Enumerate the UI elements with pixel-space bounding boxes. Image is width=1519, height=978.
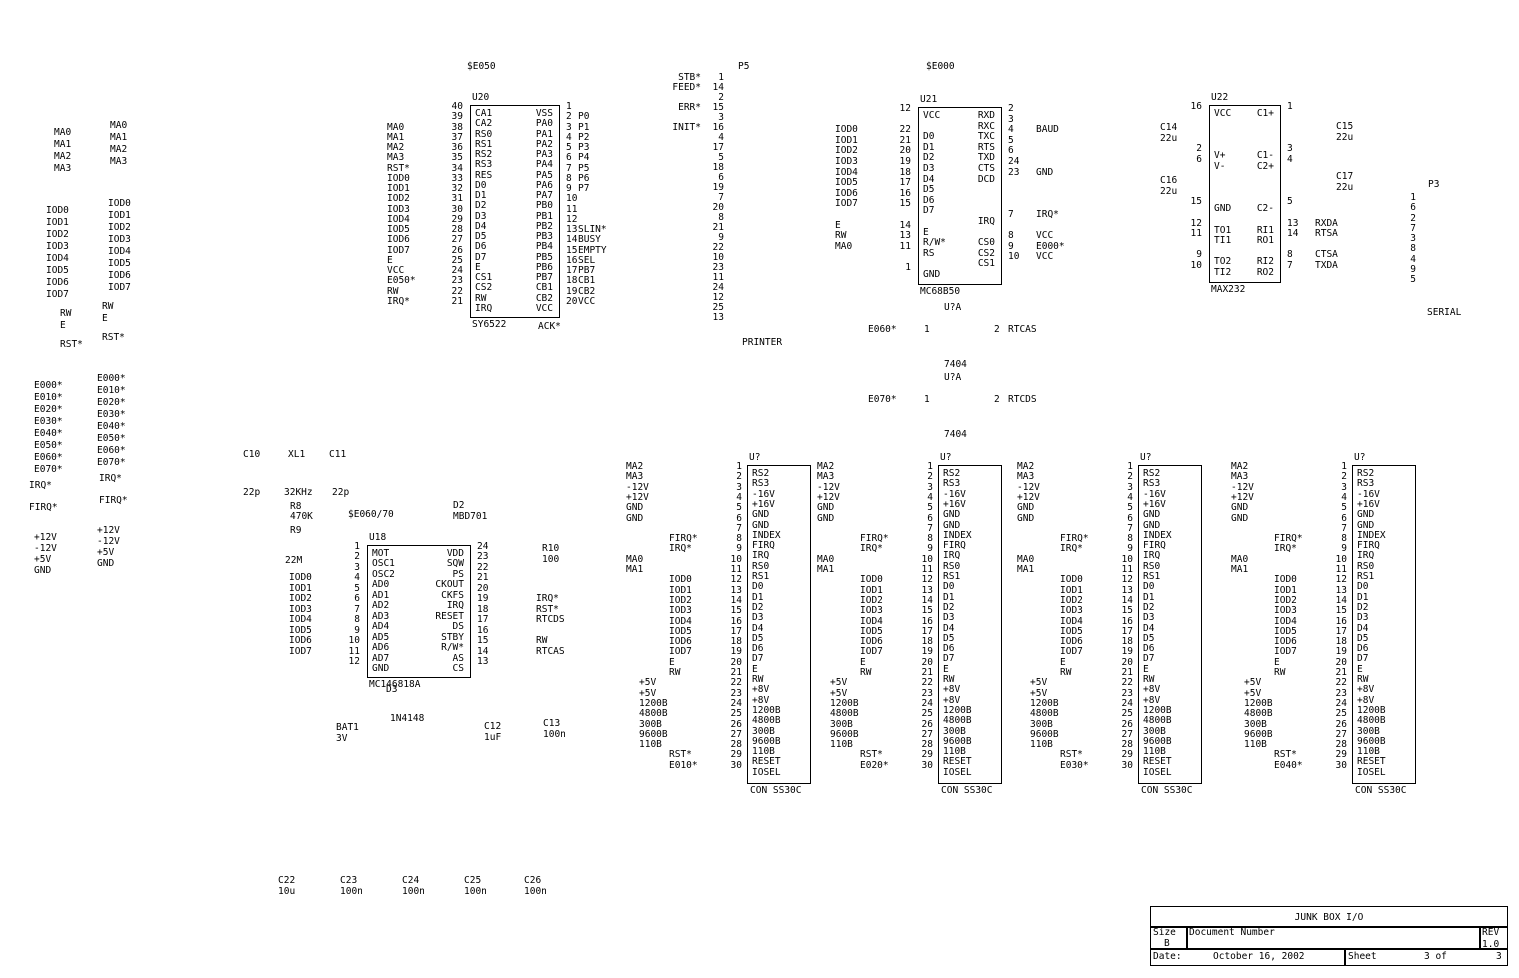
pin-net: RW	[1060, 668, 1071, 678]
pin-number: 3	[566, 123, 572, 133]
text-label: ACK*	[538, 322, 561, 332]
pin-net: 300B	[1030, 720, 1053, 730]
pin-name: RESET	[943, 757, 972, 767]
gate-refdes: U?A	[944, 373, 961, 383]
text-label: C26	[524, 876, 541, 886]
connector-partnumber: CON SS30C	[1141, 786, 1192, 796]
terminal-net-label: IOD2	[108, 223, 131, 233]
pin-net: 110B	[639, 740, 662, 750]
terminal-label: IOD2	[46, 230, 69, 240]
pin-number: 10	[566, 194, 577, 204]
terminal-net-label: MA3	[110, 157, 127, 167]
pin-number: 23	[1008, 168, 1019, 178]
pin-number: 3	[1008, 115, 1014, 125]
terminal-label: RST*	[60, 340, 83, 350]
pin-net: IOD2	[289, 594, 312, 604]
pin-name: IRQ	[1143, 551, 1160, 561]
pin-net: E020*	[860, 761, 889, 771]
pin-number: 30	[1122, 761, 1133, 771]
pin-number: 2	[1196, 144, 1202, 154]
text-label: R10	[542, 544, 559, 554]
pin-net: IOD0	[1274, 575, 1297, 585]
pin-name: AD2	[372, 601, 389, 611]
terminal-label: E040*	[34, 429, 63, 439]
gate-output-net: RTCAS	[1008, 325, 1037, 335]
pin-net: IOD7	[387, 246, 410, 256]
sheet-title: JUNK BOX I/O	[1295, 912, 1364, 923]
text-label: D2	[453, 501, 464, 511]
connector-refdes: U?	[940, 453, 951, 463]
text-label: 100	[542, 555, 559, 565]
pin-net: IRQ*	[669, 544, 692, 554]
terminal-label: E060*	[34, 453, 63, 463]
terminal-label: E000*	[34, 381, 63, 391]
pin-number: 19	[900, 157, 911, 167]
pin-name: D7	[923, 206, 934, 216]
terminal-net-label: GND	[97, 559, 114, 569]
gate-output-net: RTCDS	[1008, 395, 1037, 405]
pin-net: +5V	[1030, 678, 1047, 688]
pin-net: IRQ*	[1036, 210, 1059, 220]
terminal-net-label: FIRQ*	[99, 496, 128, 506]
pin-name: D3	[1143, 613, 1154, 623]
pin-net: GND	[817, 514, 834, 524]
pin-name: RES	[475, 171, 492, 181]
pin-number: 5	[1008, 136, 1014, 146]
pin-net: MA1	[1017, 565, 1034, 575]
pin-net: E040*	[1274, 761, 1303, 771]
pin-name: CS	[453, 664, 464, 674]
pin-net: BUSY	[578, 235, 601, 245]
text-label: C12	[484, 722, 501, 732]
pin-net: IRQ*	[1274, 544, 1297, 554]
pin-net: RST*	[860, 750, 883, 760]
pin-number: 5	[1410, 275, 1416, 285]
pin-net: MA3	[1231, 472, 1248, 482]
text-label: $E060/70	[348, 510, 394, 520]
pin-net: IOD3	[669, 606, 692, 616]
pin-name: AD0	[372, 580, 389, 590]
pin-number: 2	[994, 395, 1000, 405]
pin-name: D3	[752, 613, 763, 623]
pin-number: 9	[1008, 242, 1014, 252]
pin-number: 1	[924, 395, 930, 405]
pin-name: RXD	[978, 111, 995, 121]
text-label: C25	[464, 876, 481, 886]
text-label: C24	[402, 876, 419, 886]
pin-number: 3	[1287, 144, 1293, 154]
pin-net: EMPTY	[578, 246, 607, 256]
pin-net: RW	[1274, 668, 1285, 678]
pin-number: 8	[1008, 231, 1014, 241]
text-label: 100n	[543, 730, 566, 740]
terminal-label: E050*	[34, 441, 63, 451]
pin-net: IOD1	[835, 136, 858, 146]
pin-net: CTSA	[1315, 250, 1338, 260]
terminal-net-label: E030*	[97, 410, 126, 420]
pin-net: 300B	[830, 720, 853, 730]
gate-partnumber: 7404	[944, 430, 967, 440]
pin-net: MA3	[817, 472, 834, 482]
pin-name: D0	[923, 132, 934, 142]
pin-net: RW	[860, 668, 871, 678]
terminal-net-label: IOD5	[108, 259, 131, 269]
pin-net: GND	[1036, 168, 1053, 178]
terminal-label: IOD6	[46, 278, 69, 288]
pin-name: D7	[752, 654, 763, 664]
pin-name: RS0	[475, 130, 492, 140]
pin-name: TO1	[1214, 226, 1231, 236]
pin-net: IOD6	[289, 636, 312, 646]
terminal-label: -12V	[34, 544, 57, 554]
pin-number: 4	[1008, 125, 1014, 135]
pin-name: D0	[752, 582, 763, 592]
pin-net: VCC	[1036, 252, 1053, 262]
text-label: 22u	[1336, 133, 1353, 143]
terminal-net-label: IOD6	[108, 271, 131, 281]
pin-name: C1-	[1257, 151, 1274, 161]
pin-name: IOSEL	[752, 768, 781, 778]
pin-name: TXD	[978, 153, 995, 163]
pin-net: +5V	[830, 678, 847, 688]
pin-net: GND	[1017, 503, 1034, 513]
pin-number: 15	[900, 199, 911, 209]
text-label: 1N4148	[390, 714, 424, 724]
pin-number: 13	[900, 231, 911, 241]
pin-net: ERR*	[678, 103, 701, 113]
chip-refdes: U18	[369, 533, 386, 543]
pin-net: RST*	[387, 164, 410, 174]
text-label: 32KHz	[284, 488, 313, 498]
pin-net: IOD4	[1274, 617, 1297, 627]
pin-net: +5V	[1244, 678, 1261, 688]
terminal-net-label: E050*	[97, 434, 126, 444]
pin-net: MA3	[387, 153, 404, 163]
pin-number: 11	[1191, 229, 1202, 239]
terminal-net-label: IOD0	[108, 199, 131, 209]
pin-net: IOD7	[835, 199, 858, 209]
pin-name: 300B	[1143, 727, 1166, 737]
terminal-net-label: IOD7	[108, 283, 131, 293]
terminal-net-label: -12V	[97, 537, 120, 547]
pin-net: 300B	[1244, 720, 1267, 730]
pin-net: 110B	[1244, 740, 1267, 750]
terminal-net-label: IRQ*	[99, 474, 122, 484]
pin-net: IOD7	[1274, 647, 1297, 657]
pin-number: 12	[1191, 219, 1202, 229]
pin-name: VCC	[536, 304, 553, 314]
pin-number: 21	[452, 297, 463, 307]
terminal-label: IOD3	[46, 242, 69, 252]
pin-net: 4800B	[1030, 709, 1059, 719]
pin-name: GND	[1357, 521, 1374, 531]
pin-net: VCC	[578, 297, 595, 307]
pin-number: 24	[1008, 157, 1019, 167]
text-label: MBD701	[453, 512, 487, 522]
pin-name: RXC	[978, 122, 995, 132]
chip-refdes: U21	[920, 95, 937, 105]
pin-number: 15	[566, 246, 577, 256]
terminal-label: MA3	[54, 164, 71, 174]
pin-net: IOD6	[835, 189, 858, 199]
pin-number: 8	[1287, 250, 1293, 260]
pin-number: 18	[566, 276, 577, 286]
pin-net: IOD4	[289, 615, 312, 625]
pin-net: 110B	[1030, 740, 1053, 750]
pin-name: GND	[752, 521, 769, 531]
pin-net: MA1	[817, 565, 834, 575]
pin-name: V+	[1214, 151, 1225, 161]
terminal-label: IOD4	[46, 254, 69, 264]
gate-partnumber: 7404	[944, 360, 967, 370]
pin-net: E030*	[1060, 761, 1089, 771]
pin-name: GND	[372, 664, 389, 674]
pin-net: MA0	[387, 123, 404, 133]
pin-net: 4800B	[830, 709, 859, 719]
pin-number: 13	[1287, 219, 1298, 229]
pin-number: 30	[1336, 761, 1347, 771]
terminal-net-label: E010*	[97, 386, 126, 396]
text-label: BAT1	[336, 723, 359, 733]
pin-name: C1+	[1257, 109, 1274, 119]
pin-name: CS0	[978, 238, 995, 248]
pin-name: RESET	[1143, 757, 1172, 767]
pin-number: 17	[900, 178, 911, 188]
pin-name: D7	[1357, 654, 1368, 664]
pin-name: 300B	[943, 727, 966, 737]
pin-name: RO1	[1257, 236, 1274, 246]
pin-name: VCC	[1214, 109, 1231, 119]
pin-name: VCC	[923, 111, 940, 121]
text-label: $E050	[467, 62, 496, 72]
pin-net: IRQ*	[860, 544, 883, 554]
text-label: $E000	[926, 62, 955, 72]
pin-number: 2	[566, 112, 572, 122]
pin-number: 7	[1008, 210, 1014, 220]
pin-name: RTS	[978, 143, 995, 153]
pin-net: IOD4	[860, 617, 883, 627]
terminal-net-label: MA0	[110, 121, 127, 131]
text-label: D3	[386, 685, 397, 695]
pin-net: E000*	[1036, 242, 1065, 252]
terminal-net-label: MA2	[110, 145, 127, 155]
pin-number: 20	[900, 146, 911, 156]
sheet-total: 3	[1496, 951, 1502, 962]
pin-name: D3	[475, 212, 486, 222]
pin-net: MA3	[626, 472, 643, 482]
pin-number: 12	[349, 657, 360, 667]
pin-net: VCC	[1036, 231, 1053, 241]
pin-net: 300B	[639, 720, 662, 730]
pin-name: D0	[1143, 582, 1154, 592]
pin-name: D7	[475, 253, 486, 263]
terminal-label: IOD1	[46, 218, 69, 228]
pin-number: 13	[477, 657, 488, 667]
chip-refdes: U20	[472, 93, 489, 103]
pin-name: +8V	[752, 685, 769, 695]
pin-net: RW	[835, 231, 846, 241]
pin-net: 4800B	[639, 709, 668, 719]
text-label: R9	[290, 526, 301, 536]
connector-refdes: P3	[1428, 180, 1439, 190]
pin-name: D7	[943, 654, 954, 664]
terminal-net-label: RST*	[102, 333, 125, 343]
doc-number-label: Document Number	[1189, 927, 1275, 938]
text-label: 22u	[1160, 187, 1177, 197]
pin-net: GND	[1231, 514, 1248, 524]
pin-name: TO2	[1214, 257, 1231, 267]
pin-name: D6	[475, 242, 486, 252]
terminal-label: MA2	[54, 152, 71, 162]
pin-net: GND	[817, 503, 834, 513]
terminal-label: IOD7	[46, 290, 69, 300]
text-label: XL1	[288, 450, 305, 460]
pin-number: 19	[566, 287, 577, 297]
pin-name: D0	[943, 582, 954, 592]
connector-label: PRINTER	[742, 338, 782, 348]
pin-name: GND	[943, 521, 960, 531]
pin-number: 20	[566, 297, 577, 307]
pin-name: OSC1	[372, 559, 395, 569]
pin-net: IOD4	[1060, 617, 1083, 627]
text-label: 22M	[285, 556, 302, 566]
text-label: 22u	[1336, 183, 1353, 193]
pin-name: C2-	[1257, 204, 1274, 214]
pin-name: D1	[923, 143, 934, 153]
pin-net: IOD7	[289, 647, 312, 657]
pin-name: 4800B	[752, 716, 781, 726]
text-label: C13	[543, 719, 560, 729]
text-label: 100n	[524, 887, 547, 897]
gate-input-net: E070*	[868, 395, 897, 405]
text-label: C15	[1336, 122, 1353, 132]
pin-name: +8V	[1143, 685, 1160, 695]
text-label: C11	[329, 450, 346, 460]
pin-name: D3	[923, 164, 934, 174]
text-label: 22p	[243, 488, 260, 498]
pin-number: 9	[1196, 250, 1202, 260]
pin-net: RW	[669, 668, 680, 678]
pin-number: 21	[900, 136, 911, 146]
pin-name: E	[923, 228, 929, 238]
pin-name: RS3	[943, 479, 960, 489]
pin-net: IOD6	[387, 235, 410, 245]
pin-net: GND	[1231, 503, 1248, 513]
connector-partnumber: CON SS30C	[750, 786, 801, 796]
date-value: October 16, 2002	[1213, 951, 1305, 962]
pin-number: 6	[1196, 155, 1202, 165]
pin-net: IOD3	[835, 157, 858, 167]
pin-name: IOSEL	[943, 768, 972, 778]
pin-number: 7	[566, 164, 572, 174]
pin-net: P5	[578, 164, 589, 174]
pin-name: TI1	[1214, 236, 1231, 246]
text-label: C14	[1160, 123, 1177, 133]
text-label: C17	[1336, 172, 1353, 182]
pin-number: 11	[566, 205, 577, 215]
text-label: 100n	[402, 887, 425, 897]
pin-number: 4	[1287, 155, 1293, 165]
connector-partnumber: CON SS30C	[941, 786, 992, 796]
pin-name: D4	[752, 624, 763, 634]
pin-net: RW	[536, 636, 547, 646]
connector-refdes: P5	[738, 62, 749, 72]
pin-name: D3	[943, 613, 954, 623]
pin-name: IRQ	[475, 304, 492, 314]
sheet-label: Sheet	[1348, 951, 1377, 962]
pin-number: 1	[924, 325, 930, 335]
terminal-net-label: IOD1	[108, 211, 131, 221]
chip-partnumber: MC68B50	[920, 287, 960, 297]
pin-number: 14	[900, 221, 911, 231]
pin-net: RST*	[1274, 750, 1297, 760]
pin-net: IOD0	[669, 575, 692, 585]
pin-net: RXDA	[1315, 219, 1338, 229]
terminal-label: MA1	[54, 140, 71, 150]
pin-net: IRQ*	[387, 297, 410, 307]
terminal-label: IOD0	[46, 206, 69, 216]
gate-input-net: E060*	[868, 325, 897, 335]
text-label: 100n	[464, 887, 487, 897]
pin-name: 300B	[1357, 727, 1380, 737]
terminal-net-label: E070*	[97, 458, 126, 468]
connector-partnumber: CON SS30C	[1355, 786, 1406, 796]
pin-number: 6	[1008, 146, 1014, 156]
text-label: 22u	[1160, 134, 1177, 144]
sheet-of: 3 of	[1424, 951, 1447, 962]
pin-net: GND	[626, 503, 643, 513]
pin-number: 17	[477, 615, 488, 625]
terminal-net-label: E060*	[97, 446, 126, 456]
terminal-net-label: E	[102, 314, 108, 324]
pin-number: 10	[1008, 252, 1019, 262]
pin-net: E050*	[387, 276, 416, 286]
chip-partnumber: MAX232	[1211, 285, 1245, 295]
text-label: C23	[340, 876, 357, 886]
pin-net: IOD3	[1060, 606, 1083, 616]
pin-net: E	[835, 221, 841, 231]
terminal-label: +5V	[34, 555, 51, 565]
pin-name: RS3	[752, 479, 769, 489]
pin-name: RS3	[1143, 479, 1160, 489]
pin-net: RTCDS	[536, 615, 565, 625]
pin-net: FEED*	[672, 83, 701, 93]
terminal-label: FIRQ*	[29, 503, 58, 513]
pin-number: 22	[900, 125, 911, 135]
pin-name: TXC	[978, 132, 995, 142]
gate-refdes: U?A	[944, 303, 961, 313]
title-block: JUNK BOX I/O Size B Document Number REV …	[1150, 906, 1508, 966]
pin-name: AD6	[372, 643, 389, 653]
pin-name: D4	[1357, 624, 1368, 634]
pin-name: RI2	[1257, 257, 1274, 267]
terminal-label: IOD5	[46, 266, 69, 276]
terminal-label: MA0	[54, 128, 71, 138]
pin-net: +5V	[639, 678, 656, 688]
terminal-label: E020*	[34, 405, 63, 415]
rev-label: REV	[1482, 927, 1499, 938]
pin-number: 2	[1008, 104, 1014, 114]
pin-net: IOD7	[669, 647, 692, 657]
pin-net: P1	[578, 123, 589, 133]
pin-net: IOD3	[860, 606, 883, 616]
pin-net: IOD4	[835, 168, 858, 178]
pin-net: P7	[578, 184, 589, 194]
pin-net: P0	[578, 112, 589, 122]
text-label: 22p	[332, 488, 349, 498]
pin-name: +8V	[1357, 685, 1374, 695]
pin-name: GND	[1143, 521, 1160, 531]
